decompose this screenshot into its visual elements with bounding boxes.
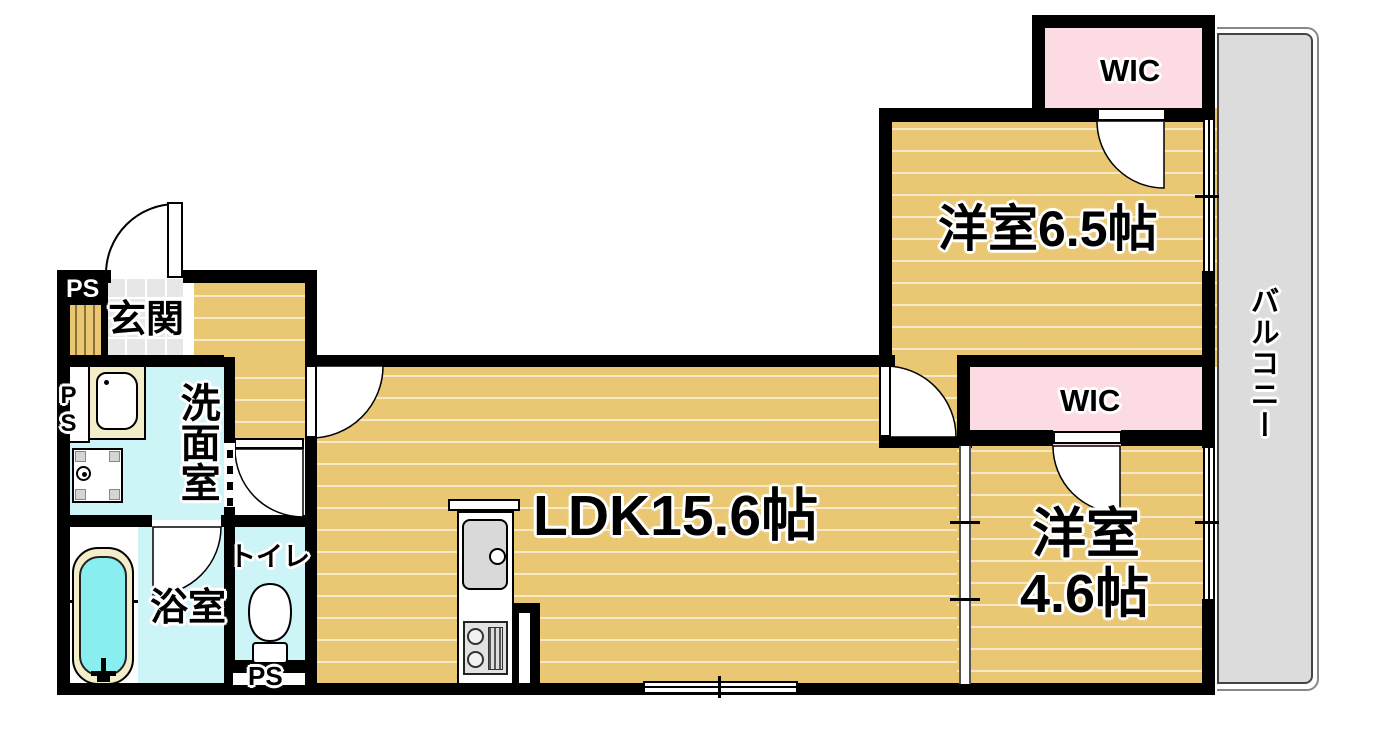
- vestibule-door-swing: [235, 449, 303, 517]
- label-bedroom46-line1: 洋室: [1032, 506, 1140, 562]
- entrance-door-leaf: [167, 202, 183, 278]
- label-ps-toilet: PS: [248, 663, 283, 690]
- accordion-door-dash: [227, 450, 233, 458]
- label-bedroom65: 洋室6.5帖: [938, 203, 1158, 255]
- label-entrance: 玄関: [108, 301, 184, 341]
- wic-upper-door-swing: [1097, 121, 1164, 188]
- accordion-door-dash: [227, 466, 233, 474]
- label-wic-lower: WIC: [1060, 385, 1120, 417]
- label-bathroom: 浴室: [150, 589, 226, 629]
- accordion-door-dash: [227, 498, 233, 506]
- toilet-bowl-icon: [249, 584, 291, 641]
- vestibule-door-leaf: [234, 438, 304, 449]
- wic-lower-door-swing: [1053, 446, 1120, 513]
- floorplan: PS 玄関 PS 洗面室 浴室 トイレ PS LDK15.6帖 洋室6.5帖 洋…: [0, 0, 1378, 729]
- wic-upper-door-leaf: [1097, 108, 1166, 121]
- label-wic-upper: WIC: [1100, 55, 1160, 87]
- bathroom-door-swing: [153, 527, 221, 595]
- label-balcony: バルコニー: [1247, 286, 1277, 441]
- label-toilet: トイレ: [229, 543, 310, 571]
- bedroom65-door-swing: [885, 366, 956, 437]
- label-washroom: 洗面室: [175, 382, 217, 502]
- ldk-door-swing: [311, 366, 383, 438]
- toilet-tank-icon: [253, 643, 287, 663]
- entrance-door-arc: [106, 204, 176, 274]
- label-ldk: LDK15.6帖: [533, 487, 818, 546]
- accordion-door-dash: [227, 482, 233, 490]
- label-ps-washroom: PS: [55, 382, 80, 438]
- label-ps-entrance: PS: [66, 276, 99, 302]
- wic-lower-door-leaf: [1053, 431, 1122, 444]
- ldk-door-leaf: [305, 365, 317, 438]
- bedroom65-door-leaf: [879, 365, 891, 437]
- label-bedroom46-line2: 4.6帖: [1020, 566, 1149, 622]
